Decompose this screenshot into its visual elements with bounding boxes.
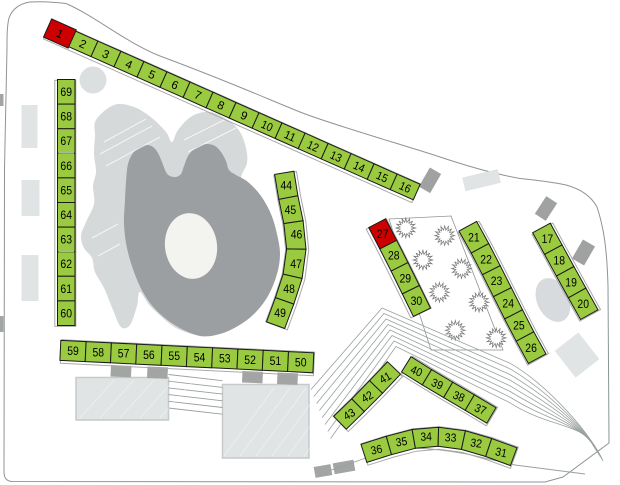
svg-text:68: 68 bbox=[60, 111, 72, 124]
svg-text:52: 52 bbox=[244, 354, 256, 367]
svg-text:34: 34 bbox=[420, 430, 433, 443]
svg-text:24: 24 bbox=[502, 298, 514, 311]
svg-text:51: 51 bbox=[270, 355, 282, 368]
svg-text:35: 35 bbox=[395, 435, 408, 449]
svg-text:54: 54 bbox=[194, 351, 206, 364]
svg-text:66: 66 bbox=[60, 160, 72, 173]
svg-text:26: 26 bbox=[525, 342, 537, 355]
svg-text:22: 22 bbox=[480, 254, 492, 267]
svg-text:17: 17 bbox=[542, 233, 554, 246]
svg-text:60: 60 bbox=[60, 307, 72, 320]
svg-text:21: 21 bbox=[468, 232, 480, 245]
svg-text:53: 53 bbox=[219, 353, 231, 366]
svg-text:45: 45 bbox=[285, 204, 297, 217]
svg-text:30: 30 bbox=[411, 295, 423, 308]
svg-text:55: 55 bbox=[168, 350, 180, 363]
svg-text:32: 32 bbox=[469, 436, 482, 450]
svg-text:29: 29 bbox=[400, 273, 412, 286]
svg-text:65: 65 bbox=[60, 184, 72, 197]
svg-text:20: 20 bbox=[577, 298, 589, 311]
svg-text:18: 18 bbox=[553, 255, 565, 268]
svg-text:33: 33 bbox=[445, 431, 457, 444]
svg-text:63: 63 bbox=[60, 234, 72, 247]
svg-text:62: 62 bbox=[60, 258, 72, 271]
svg-text:23: 23 bbox=[491, 275, 503, 288]
svg-text:56: 56 bbox=[143, 349, 155, 362]
svg-text:46: 46 bbox=[291, 229, 303, 242]
svg-text:19: 19 bbox=[565, 276, 577, 289]
svg-text:50: 50 bbox=[295, 356, 307, 369]
svg-text:49: 49 bbox=[274, 307, 286, 320]
svg-text:67: 67 bbox=[60, 135, 72, 148]
svg-text:44: 44 bbox=[281, 179, 293, 192]
svg-text:58: 58 bbox=[93, 346, 105, 359]
svg-text:27: 27 bbox=[377, 228, 389, 241]
svg-text:48: 48 bbox=[283, 283, 295, 296]
svg-text:25: 25 bbox=[513, 320, 525, 333]
svg-text:69: 69 bbox=[60, 86, 72, 99]
svg-text:28: 28 bbox=[388, 250, 400, 263]
svg-text:64: 64 bbox=[60, 209, 72, 222]
svg-text:57: 57 bbox=[118, 348, 130, 361]
svg-text:47: 47 bbox=[290, 258, 302, 271]
svg-text:61: 61 bbox=[60, 283, 72, 296]
svg-text:59: 59 bbox=[67, 345, 79, 358]
